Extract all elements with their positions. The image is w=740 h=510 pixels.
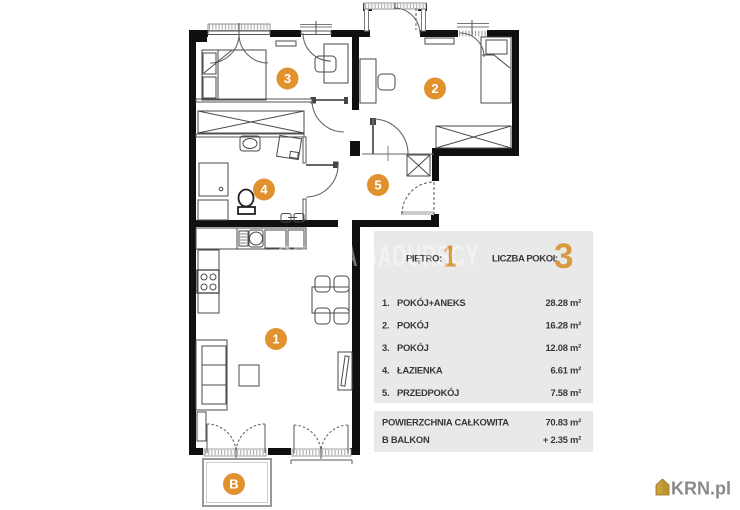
svg-text:4: 4: [260, 182, 268, 197]
svg-text:16.28 m²: 16.28 m²: [545, 320, 581, 331]
svg-text:B: B: [229, 477, 238, 492]
svg-text:7.58 m²: 7.58 m²: [550, 387, 581, 398]
svg-text:POWIERZCHNIA CAŁKOWITA: POWIERZCHNIA CAŁKOWITA: [382, 417, 509, 428]
svg-text:BRACIA SADURSCY: BRACIA SADURSCY: [278, 240, 479, 273]
svg-text:3: 3: [554, 237, 573, 276]
svg-text:POKÓJ: POKÓJ: [397, 320, 429, 331]
svg-text:2.: 2.: [382, 320, 389, 331]
svg-text:3.: 3.: [382, 342, 389, 353]
svg-text:5: 5: [374, 178, 381, 193]
svg-text:3: 3: [284, 71, 291, 86]
svg-text:5.: 5.: [382, 387, 389, 398]
svg-text:28.28 m²: 28.28 m²: [545, 297, 581, 308]
svg-text:4.: 4.: [382, 365, 389, 376]
svg-text:70.83 m²: 70.83 m²: [545, 417, 581, 428]
svg-text:PRZEDPOKÓJ: PRZEDPOKÓJ: [397, 387, 459, 398]
svg-text:1.: 1.: [382, 297, 389, 308]
svg-text:KRN.pl: KRN.pl: [671, 479, 731, 499]
svg-text:2: 2: [431, 81, 438, 96]
svg-text:ŁAZIENKA: ŁAZIENKA: [397, 365, 443, 376]
svg-text:B BALKON: B BALKON: [382, 434, 430, 445]
svg-text:1: 1: [272, 332, 279, 347]
svg-text:LICZBA POKOI:: LICZBA POKOI:: [492, 254, 558, 265]
svg-text:+ 2.35 m²: + 2.35 m²: [543, 434, 581, 445]
svg-text:POKÓJ+ANEKS: POKÓJ+ANEKS: [397, 297, 465, 308]
svg-text:POKÓJ: POKÓJ: [397, 342, 429, 353]
svg-text:6.61 m²: 6.61 m²: [550, 365, 581, 376]
svg-text:12.08 m²: 12.08 m²: [545, 342, 581, 353]
